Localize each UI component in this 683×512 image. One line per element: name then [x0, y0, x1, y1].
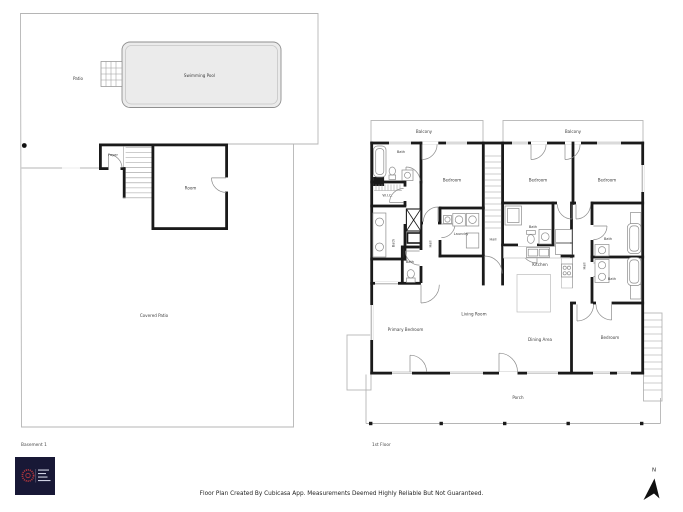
bathtub-fixture: [628, 224, 642, 254]
room-label-room: Room: [185, 186, 197, 191]
room-label-hall-left: Hall: [429, 241, 433, 248]
room-label-bath-right-upper: Bath: [604, 237, 612, 241]
basement-plan: Patio Swimming Pool Foyer Room Covered P…: [21, 14, 319, 449]
closet-fixture: [408, 233, 421, 243]
room-label-bath-right-lower: Bath: [608, 277, 616, 281]
double-vanity-fixture: [373, 213, 386, 257]
room-label-bath-left: Bath: [392, 239, 396, 247]
room-label-balcony-right: Balcony: [565, 129, 582, 134]
porch-outline: [347, 335, 661, 425]
north-label: N: [652, 468, 656, 474]
floor-plan-sheet: Patio Swimming Pool Foyer Room Covered P…: [0, 0, 683, 512]
shower-fixture: [505, 206, 522, 225]
sink-fixture: [402, 170, 413, 181]
room-label-bath-small: Bath: [406, 260, 414, 264]
stairwell: [485, 156, 502, 228]
floor-title-first-floor: 1st Floor: [372, 442, 391, 448]
north-arrow-icon: [644, 479, 660, 501]
sink-fixture: [595, 245, 609, 257]
room-label-wic: W.I.C.: [382, 194, 392, 198]
reference-dot: [22, 143, 27, 148]
basement-stairs: [123, 146, 152, 198]
hall-closet-fixture: [556, 230, 573, 255]
room-label-porch: Porch: [512, 395, 524, 400]
room-label-patio: Patio: [73, 76, 84, 81]
floor-title-basement: Basement 1: [21, 442, 47, 448]
sink-fixture: [539, 230, 552, 245]
toilet-fixture: [407, 270, 416, 283]
room-label-dining-area: Dining Area: [528, 337, 552, 342]
room-door-arc: [212, 178, 227, 193]
room-label-bath-top-left: Bath: [397, 150, 405, 154]
room-label-primary-bedroom: Primary Bedroom: [388, 327, 424, 332]
company-logo: [15, 457, 55, 495]
disclaimer-text: Floor Plan Created By Cubicasa App. Meas…: [200, 491, 484, 497]
room-label-hall-center: Hall: [490, 238, 497, 242]
pool-steps: [101, 62, 122, 87]
floor-plan-canvas: Patio Swimming Pool Foyer Room Covered P…: [0, 0, 683, 512]
exterior-stairs: [644, 313, 663, 401]
bathtub-fixture: [628, 258, 642, 286]
stove-fixture: [562, 264, 573, 277]
toilet-fixture: [389, 167, 396, 179]
room-label-laundry: Laundry: [454, 232, 470, 236]
basement-walls: [99, 144, 228, 231]
room-label-bath-center: Bath: [529, 225, 537, 229]
room-label-balcony-left: Balcony: [416, 129, 433, 134]
room-label-covered-patio: Covered Patio: [140, 313, 169, 318]
kitchen-island: [517, 275, 551, 313]
fixtures: [373, 146, 641, 312]
room-label-hall-right: Hall: [583, 263, 587, 270]
room-label-foyer: Foyer: [108, 153, 118, 157]
room-label-bedroom-top-left: Bedroom: [443, 178, 462, 183]
door-arcs: [390, 144, 612, 371]
toilet-fixture: [527, 231, 536, 244]
room-label-bedroom-bottom-right: Bedroom: [601, 335, 620, 340]
bathtub-fixture: [374, 146, 387, 177]
logo-background: [15, 457, 55, 495]
room-label-living-room: Living Room: [461, 312, 486, 317]
laundry-fixtures: [444, 214, 479, 249]
room-label-bedroom-top-right: Bedroom: [598, 178, 617, 183]
room-label-bedroom-top-center: Bedroom: [529, 178, 548, 183]
basement-door-arcs: [109, 155, 227, 193]
first-floor-plan: Balcony Balcony Bath Bedroom Bedroom Bed…: [347, 121, 662, 449]
room-label-kitchen: Kitchen: [532, 262, 548, 267]
wardrobe-fixture: [406, 209, 420, 231]
compass: N: [644, 468, 660, 501]
room-label-swimming-pool: Swimming Pool: [184, 73, 215, 78]
